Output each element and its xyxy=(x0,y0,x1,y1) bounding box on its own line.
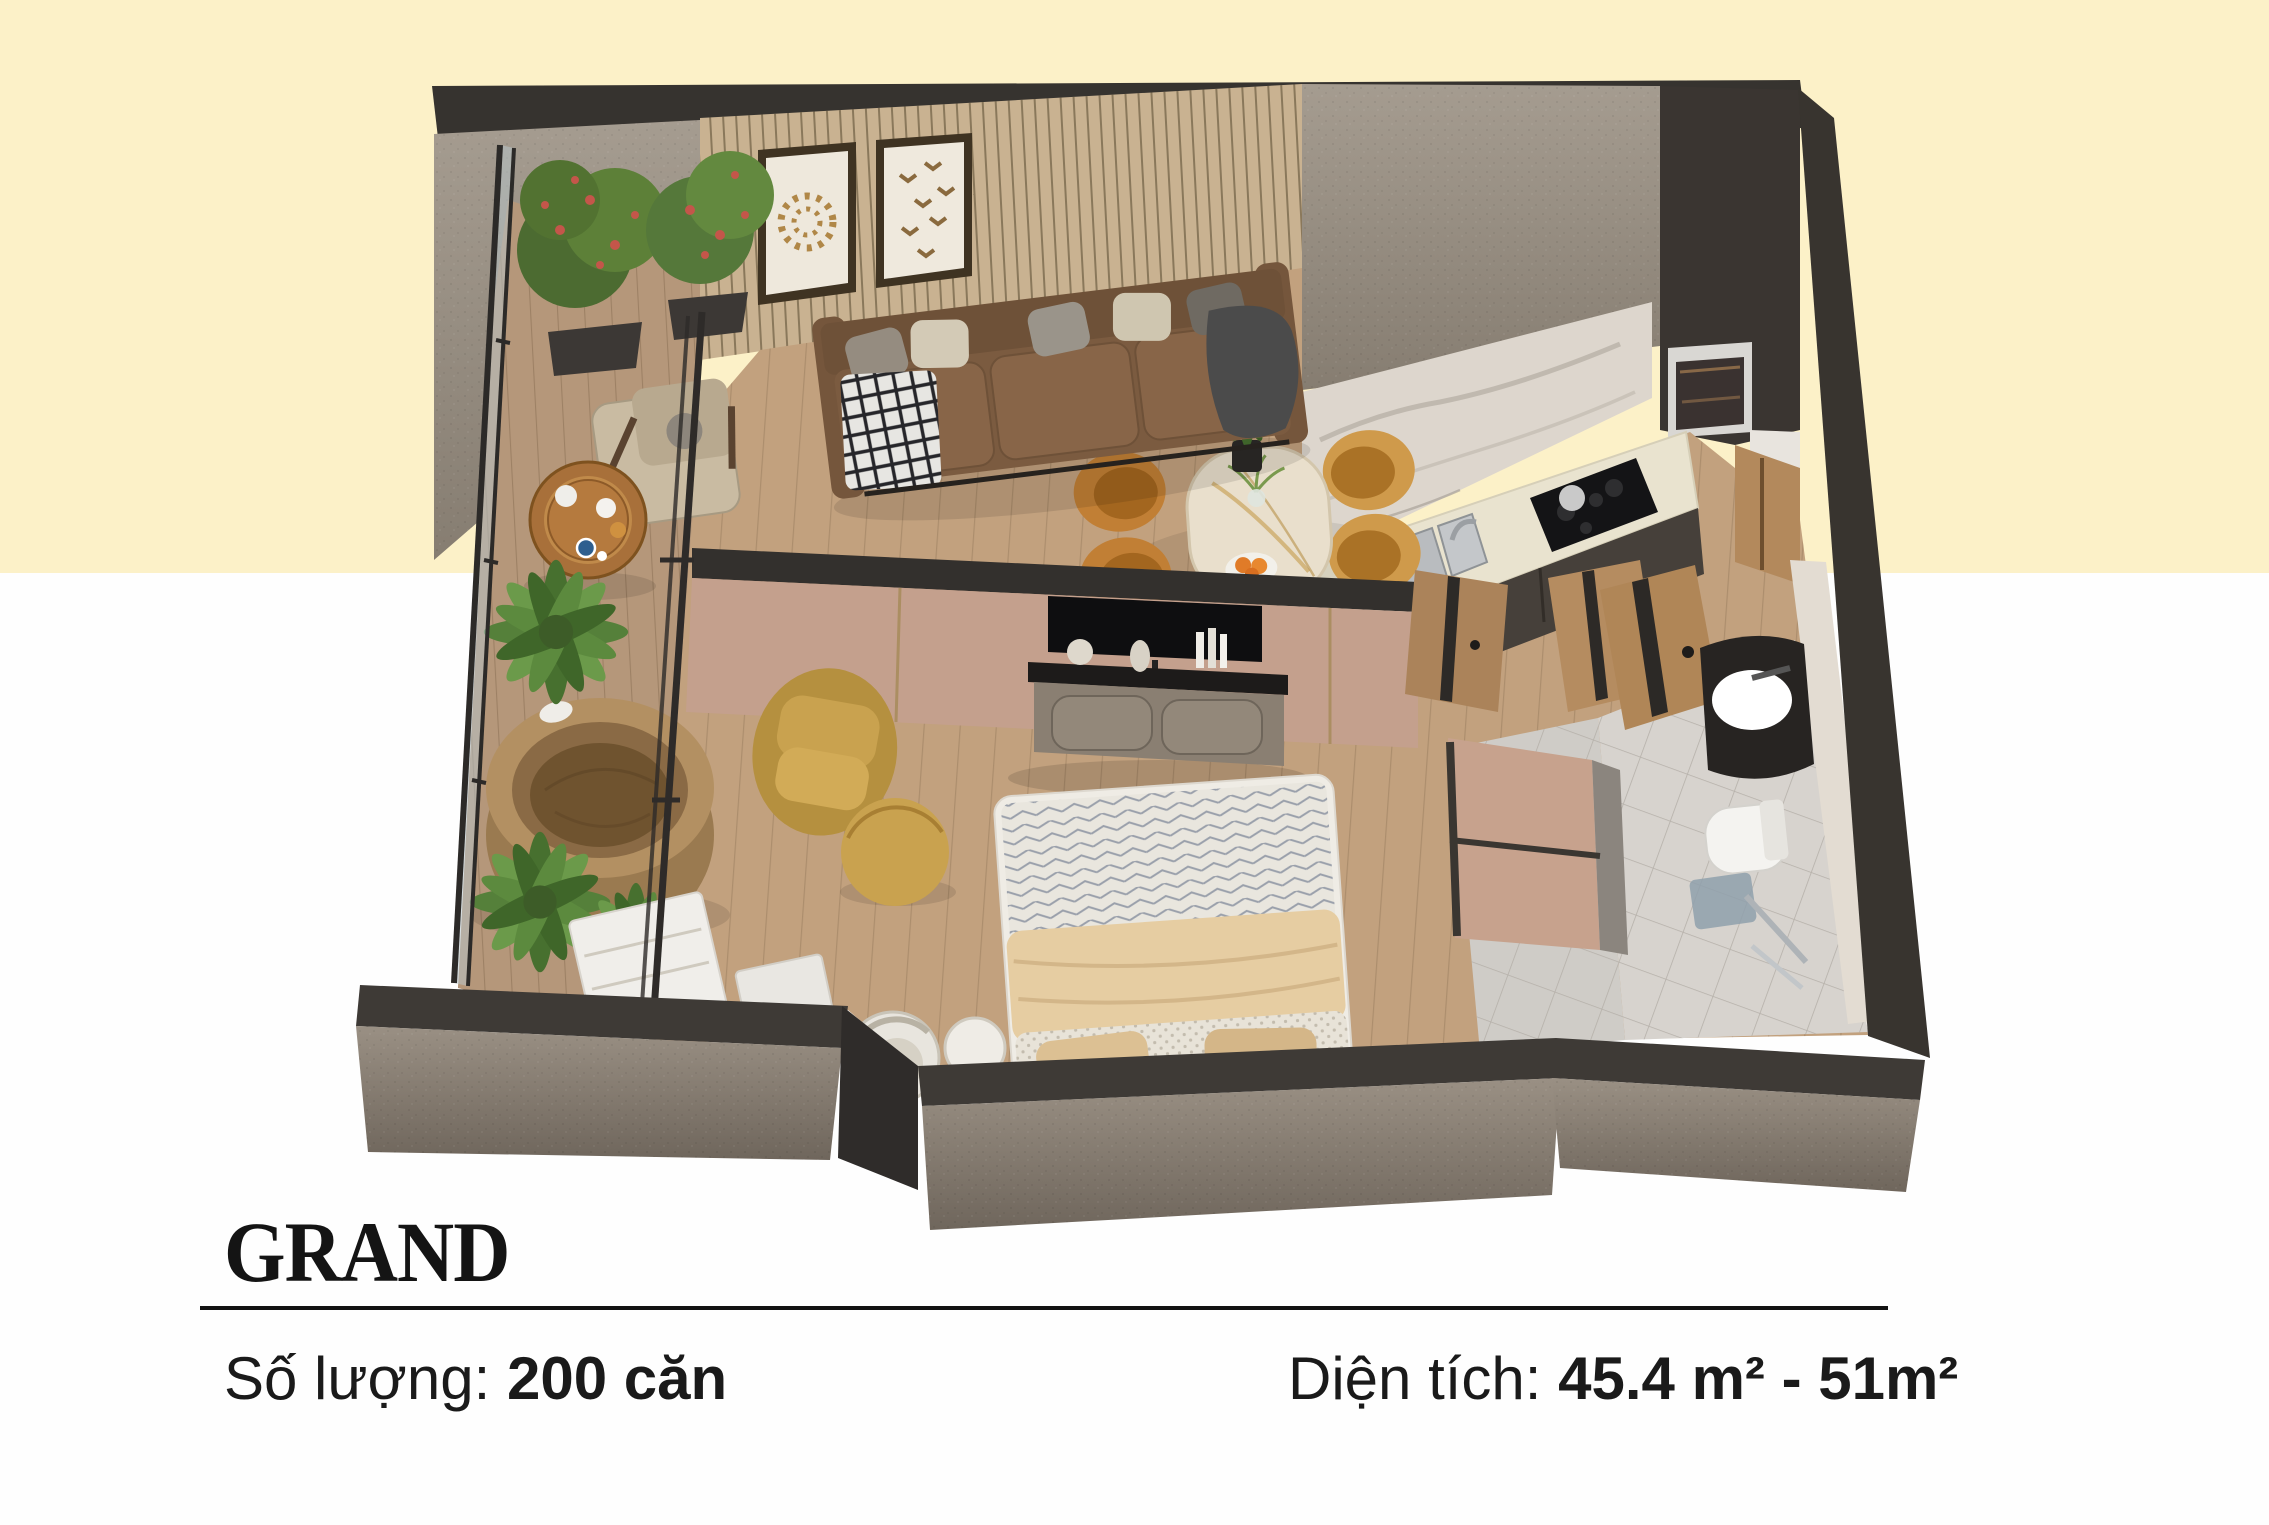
artwork-birds-frame xyxy=(876,133,972,288)
bathroom-vanity xyxy=(1700,636,1814,779)
quantity-stat: Số lượng: 200 căn xyxy=(224,1344,727,1413)
artwork-fish-frame xyxy=(758,142,856,305)
plate xyxy=(596,498,616,518)
apartment-plan-sheet: GRAND Số lượng: 200 căn Diện tích: 45.4 … xyxy=(0,0,2269,1525)
cup xyxy=(597,551,607,561)
door-handle xyxy=(1470,640,1480,650)
flower-puff xyxy=(1067,639,1093,665)
door-handle xyxy=(1682,646,1694,658)
wardrobe-block xyxy=(1448,738,1628,955)
area-label: Diện tích: xyxy=(1288,1345,1541,1412)
pot xyxy=(1559,485,1585,511)
vessel-sink xyxy=(1712,670,1792,730)
blue-plate xyxy=(577,539,595,557)
bedroom-south-wall xyxy=(918,1038,1560,1230)
area-stat: Diện tích: 45.4 m² - 51m² xyxy=(1288,1344,1958,1413)
flowers xyxy=(555,485,577,507)
divider-rule xyxy=(200,1306,1888,1310)
area-value: 45.4 m² - 51m² xyxy=(1558,1345,1958,1412)
croissant xyxy=(610,522,626,538)
balcony-south-wall xyxy=(356,985,848,1160)
entrance-door xyxy=(1735,445,1800,584)
quantity-label: Số lượng: xyxy=(224,1345,490,1412)
bathroom-south-wall xyxy=(1552,1038,1925,1192)
unit-name-title: GRAND xyxy=(224,1202,510,1302)
plaid-throw xyxy=(840,370,942,491)
vase xyxy=(1130,640,1150,672)
built-in-oven xyxy=(1668,342,1752,438)
quantity-value: 200 căn xyxy=(507,1345,727,1412)
